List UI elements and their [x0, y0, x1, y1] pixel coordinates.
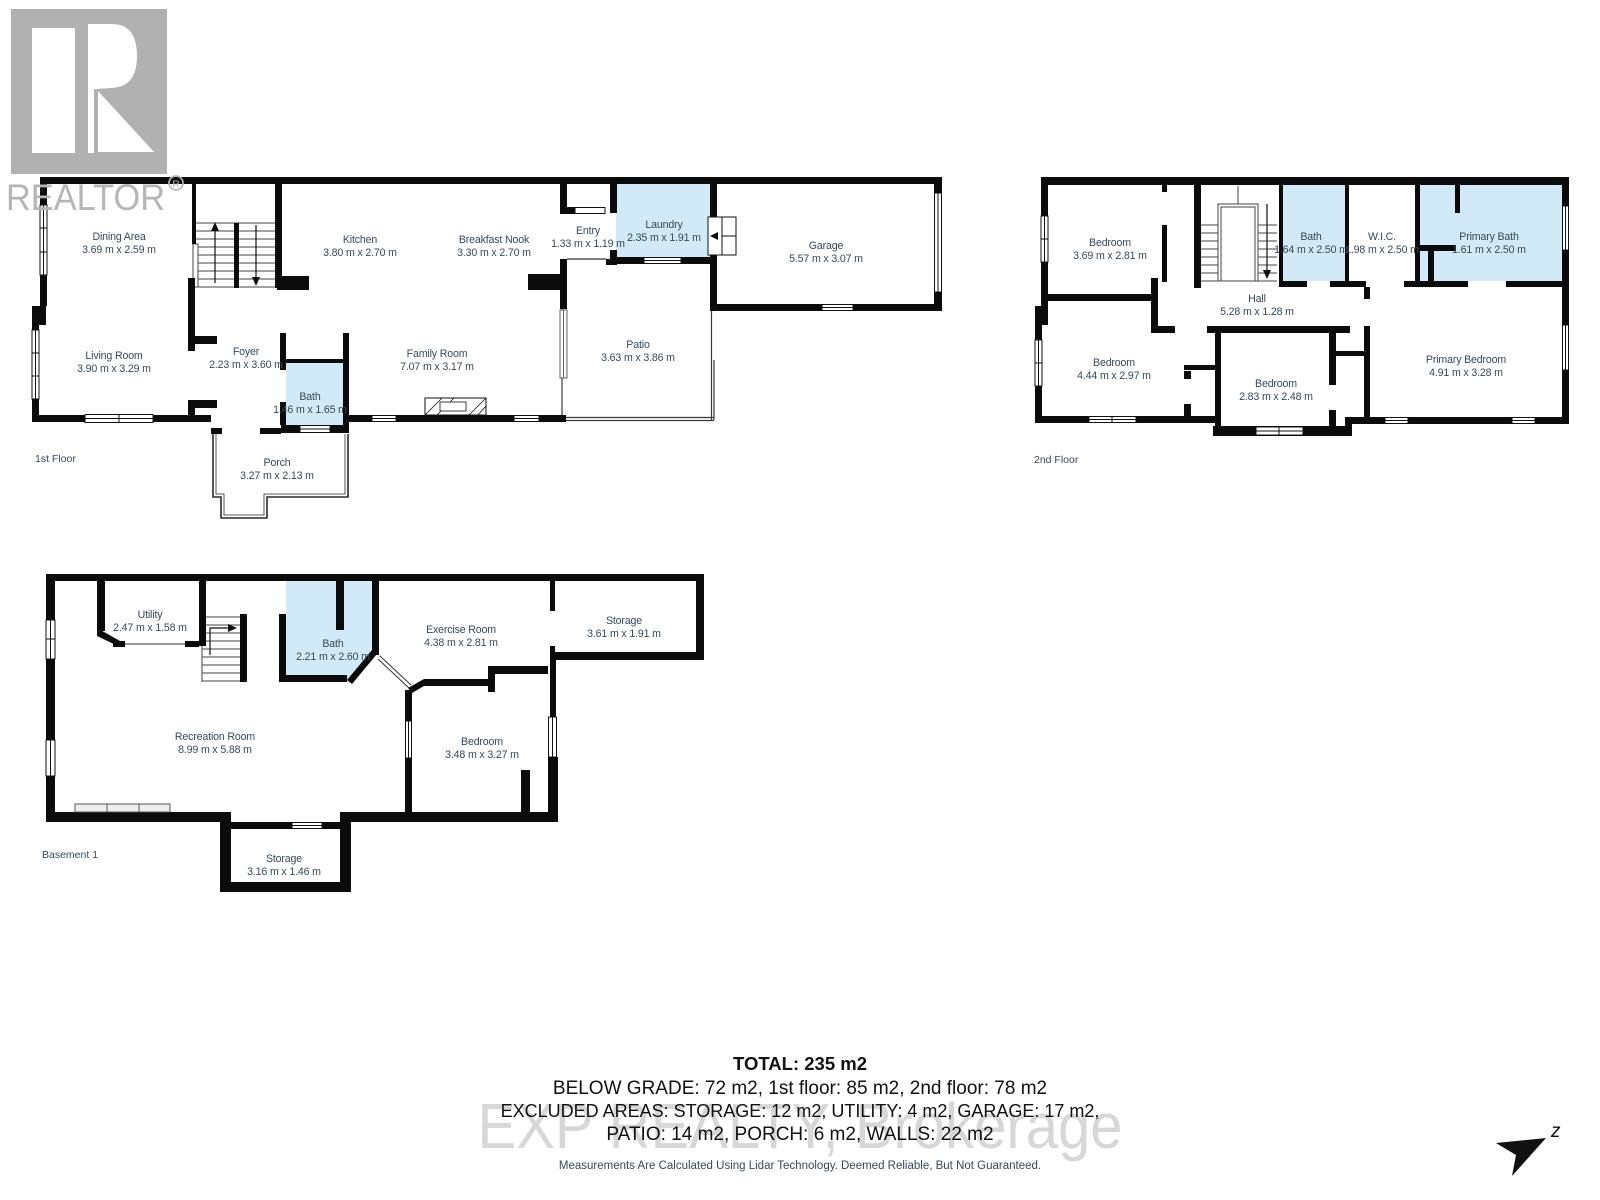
svg-text:3.30 m x 2.70 m: 3.30 m x 2.70 m: [457, 247, 531, 259]
svg-text:3.48 m x 3.27 m: 3.48 m x 3.27 m: [445, 749, 519, 761]
svg-text:PATIO: 14 m2, PORCH: 6 m2, WAL: PATIO: 14 m2, PORCH: 6 m2, WALLS: 22 m2: [606, 1124, 993, 1145]
svg-text:Bedroom: Bedroom: [1093, 357, 1135, 369]
svg-text:Basement 1: Basement 1: [42, 849, 98, 861]
svg-text:Porch: Porch: [264, 457, 291, 469]
svg-text:5.28 m x 1.28 m: 5.28 m x 1.28 m: [1220, 306, 1294, 318]
svg-text:Bath: Bath: [1300, 231, 1321, 243]
svg-text:Primary Bath: Primary Bath: [1459, 231, 1519, 243]
svg-text:Primary Bedroom: Primary Bedroom: [1426, 354, 1506, 366]
svg-text:Bath: Bath: [322, 638, 343, 650]
svg-text:2.47 m x 1.58 m: 2.47 m x 1.58 m: [113, 622, 187, 634]
svg-text:Laundry: Laundry: [645, 219, 683, 231]
svg-text:Bedroom: Bedroom: [1255, 378, 1297, 390]
svg-text:Recreation Room: Recreation Room: [175, 731, 256, 743]
svg-text:Bedroom: Bedroom: [1089, 237, 1131, 249]
svg-text:1.61 m x 2.50 m: 1.61 m x 2.50 m: [1452, 244, 1526, 256]
svg-text:3.69 m x 2.59 m: 3.69 m x 2.59 m: [82, 244, 156, 256]
svg-text:1.46 m x 1.65 m: 1.46 m x 1.65 m: [273, 404, 347, 416]
svg-text:Hall: Hall: [1248, 293, 1266, 305]
svg-text:Bedroom: Bedroom: [461, 736, 503, 748]
svg-text:2.21 m x 2.60 m: 2.21 m x 2.60 m: [296, 651, 370, 663]
svg-text:Patio: Patio: [626, 339, 650, 351]
svg-text:Dining Area: Dining Area: [92, 231, 145, 243]
svg-text:2.83 m x 2.48 m: 2.83 m x 2.48 m: [1239, 391, 1313, 403]
svg-text:Storage: Storage: [606, 615, 642, 627]
svg-text:BELOW GRADE: 72 m2, 1st floor:: BELOW GRADE: 72 m2, 1st floor: 85 m2, 2n…: [553, 1078, 1047, 1099]
svg-text:2nd Floor: 2nd Floor: [1034, 454, 1079, 466]
svg-text:7.07 m x 3.17 m: 7.07 m x 3.17 m: [400, 361, 474, 373]
svg-text:Kitchen: Kitchen: [343, 234, 378, 246]
svg-text:3.63 m x 3.86 m: 3.63 m x 3.86 m: [601, 352, 675, 364]
svg-text:3.16 m x 1.46 m: 3.16 m x 1.46 m: [247, 866, 321, 878]
svg-text:W.I.C.: W.I.C.: [1368, 231, 1396, 243]
svg-text:Bath: Bath: [299, 391, 320, 403]
svg-text:3.90 m x 3.29 m: 3.90 m x 3.29 m: [77, 363, 151, 375]
svg-text:Family Room: Family Room: [407, 348, 468, 360]
svg-text:2.35 m x 1.91 m: 2.35 m x 1.91 m: [627, 232, 701, 244]
svg-text:R: R: [172, 180, 179, 191]
svg-text:3.80 m x 2.70 m: 3.80 m x 2.70 m: [323, 247, 397, 259]
svg-text:REALTOR: REALTOR: [6, 177, 165, 218]
svg-text:1st Floor: 1st Floor: [35, 453, 76, 465]
svg-text:TOTAL: 235 m2: TOTAL: 235 m2: [733, 1053, 867, 1074]
svg-text:Breakfast Nook: Breakfast Nook: [459, 234, 530, 246]
svg-text:Entry: Entry: [576, 225, 601, 237]
svg-text:5.57 m x 3.07 m: 5.57 m x 3.07 m: [789, 253, 863, 265]
svg-text:3.69 m x 2.81 m: 3.69 m x 2.81 m: [1073, 250, 1147, 262]
svg-text:Measurements Are Calculated Us: Measurements Are Calculated Using Lidar …: [559, 1160, 1041, 1172]
svg-text:8.99 m x 5.88 m: 8.99 m x 5.88 m: [178, 744, 252, 756]
svg-text:Utility: Utility: [138, 609, 164, 621]
svg-text:Storage: Storage: [266, 853, 302, 865]
svg-text:Exercise Room: Exercise Room: [426, 624, 496, 636]
svg-text:4.91 m x 3.28 m: 4.91 m x 3.28 m: [1429, 367, 1503, 379]
svg-text:3.61 m x 1.91 m: 3.61 m x 1.91 m: [587, 628, 661, 640]
svg-text:Foyer: Foyer: [233, 346, 260, 358]
svg-text:2.23 m x 3.60 m: 2.23 m x 3.60 m: [209, 359, 283, 371]
svg-text:4.44 m x 2.97 m: 4.44 m x 2.97 m: [1077, 370, 1151, 382]
svg-text:Garage: Garage: [809, 240, 844, 252]
svg-text:1.33 m x 1.19 m: 1.33 m x 1.19 m: [551, 238, 625, 250]
svg-text:3.27 m x 2.13 m: 3.27 m x 2.13 m: [240, 470, 314, 482]
svg-text:1.64 m x 2.50 m: 1.64 m x 2.50 m: [1274, 244, 1348, 256]
svg-text:EXCLUDED AREAS: STORAGE: 12 m2: EXCLUDED AREAS: STORAGE: 12 m2, UTILITY:…: [501, 1101, 1100, 1121]
svg-text:1.98 m x 2.50 m: 1.98 m x 2.50 m: [1345, 244, 1419, 256]
svg-text:Living Room: Living Room: [85, 350, 143, 362]
svg-text:4.38 m x 2.81 m: 4.38 m x 2.81 m: [424, 637, 498, 649]
svg-text:z: z: [1550, 1121, 1561, 1142]
